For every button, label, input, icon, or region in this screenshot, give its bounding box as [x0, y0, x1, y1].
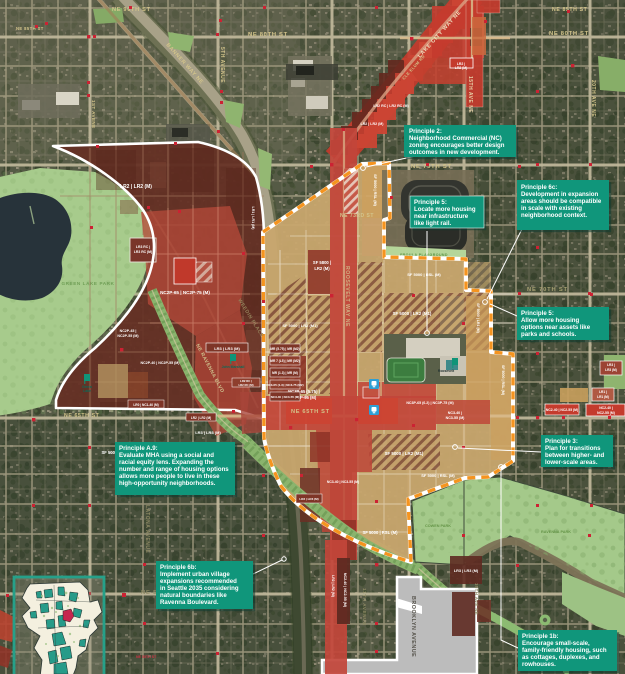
svg-text:NE 80TH ST: NE 80TH ST: [248, 32, 288, 38]
svg-text:Plan for transitions: Plan for transitions: [545, 445, 601, 452]
svg-text:COWEN PARK: COWEN PARK: [425, 524, 451, 528]
svg-text:Allow more housing: Allow more housing: [521, 317, 580, 324]
svg-text:BROOKLYN AVENUE: BROOKLYN AVENUE: [410, 596, 416, 657]
svg-text:NC3P-65 (6.2) | NC3P-75 (M): NC3P-65 (6.2) | NC3P-75 (M): [406, 401, 454, 405]
svg-text:rowhouses.: rowhouses.: [522, 661, 556, 668]
svg-text:LR2 RC (M): LR2 RC (M): [238, 383, 253, 387]
svg-text:Principle 2:: Principle 2:: [409, 128, 442, 135]
svg-text:in scale with existing: in scale with existing: [521, 205, 582, 212]
svg-text:Principle 6b:: Principle 6b:: [160, 564, 197, 571]
svg-text:11TH AVENUE: 11TH AVENUE: [361, 588, 367, 626]
svg-text:Lake: Lake: [83, 389, 91, 393]
svg-text:SF 5000 | LR2 (M1): SF 5000 | LR2 (M1): [393, 311, 432, 316]
svg-text:high-opportunity neighborhoods: high-opportunity neighborhoods.: [119, 480, 216, 487]
svg-text:Principle A.9:: Principle A.9:: [119, 445, 158, 452]
svg-text:LR3 | LR3 (M): LR3 | LR3 (M): [299, 497, 318, 501]
svg-text:NC2-40 | NC2-55 (M): NC2-40 | NC2-55 (M): [546, 408, 578, 412]
svg-text:SF 5000 | LR1 (M): SF 5000 | LR1 (M): [476, 303, 480, 334]
svg-text:NC2P-65 | NC2P-75 (M): NC2P-65 | NC2P-75 (M): [160, 290, 210, 295]
svg-text:SF 5000 | RSL (M): SF 5000 | RSL (M): [421, 473, 455, 478]
svg-text:MR (5.75) | MR (M2): MR (5.75) | MR (M2): [270, 347, 299, 351]
svg-text:GREEN LAKE PARK: GREEN LAKE PARK: [61, 281, 114, 286]
svg-text:parks and schools.: parks and schools.: [521, 331, 577, 338]
svg-text:zoning encourages better desig: zoning encourages better design: [409, 142, 505, 149]
svg-text:LR2 RC | LR2 RC (M): LR2 RC | LR2 RC (M): [373, 104, 409, 108]
svg-text:SF 5000 | LR2 (M1): SF 5000 | LR2 (M1): [282, 323, 318, 328]
svg-text:number and range of housing op: number and range of housing options: [119, 466, 229, 473]
svg-text:SF 5000 | RSL (M): SF 5000 | RSL (M): [407, 272, 441, 277]
svg-text:LATONA AVENUE: LATONA AVENUE: [144, 505, 150, 554]
svg-text:NE 65TH ST: NE 65TH ST: [64, 413, 100, 419]
svg-text:RAVENNA PARK: RAVENNA PARK: [541, 530, 571, 534]
svg-text:NC3-65 (1.3) | NC3-75 (M2): NC3-65 (1.3) | NC3-75 (M2): [266, 383, 303, 387]
svg-text:Locate more housing: Locate more housing: [414, 206, 476, 213]
svg-text:LR2 | LR2 (M): LR2 | LR2 (M): [120, 184, 152, 190]
svg-text:outcomes in new development.: outcomes in new development.: [409, 149, 500, 156]
svg-text:NE 65TH ST: NE 65TH ST: [291, 409, 330, 415]
svg-text:15TH AVE NE: 15TH AVE NE: [474, 583, 479, 615]
svg-text:SF 5000 | RSL (M): SF 5000 | RSL (M): [362, 530, 398, 535]
svg-text:LR2 | LR2 (M): LR2 | LR2 (M): [361, 122, 385, 126]
svg-text:Evaluate MHA using a social an: Evaluate MHA using a social and: [119, 452, 214, 459]
svg-text:15TH AVE NE: 15TH AVE NE: [467, 76, 473, 113]
svg-text:20TH AVE NE: 20TH AVE NE: [590, 80, 596, 117]
svg-text:LR3 | LR3 (M): LR3 | LR3 (M): [214, 346, 240, 351]
svg-text:LR1 |: LR1 |: [599, 390, 607, 394]
svg-text:Neighborhood Commercial (NC): Neighborhood Commercial (NC): [409, 135, 502, 142]
svg-text:NE 75TH ST: NE 75TH ST: [411, 164, 452, 170]
svg-text:as cottages, duplexes, and: as cottages, duplexes, and: [522, 654, 600, 661]
svg-text:near infrastructure: near infrastructure: [414, 213, 469, 220]
svg-text:Principle 3:: Principle 3:: [545, 438, 578, 445]
svg-text:Ravenna Boulevard.: Ravenna Boulevard.: [160, 599, 219, 606]
svg-text:expansions recommended: expansions recommended: [160, 578, 237, 585]
svg-text:natural boundaries like: natural boundaries like: [160, 592, 227, 599]
svg-text:NE 55TH ST: NE 55TH ST: [136, 655, 157, 659]
svg-text:like light rail.: like light rail.: [414, 220, 452, 227]
svg-text:options near assets like: options near assets like: [521, 324, 591, 331]
svg-text:SF 5000 | LR2 (M1): SF 5000 | LR2 (M1): [385, 451, 424, 456]
svg-text:NC3-55 (M): NC3-55 (M): [446, 416, 466, 420]
svg-text:neighborhood context.: neighborhood context.: [521, 212, 587, 219]
svg-text:Principle 5:: Principle 5:: [521, 310, 554, 317]
svg-text:Development in expansion: Development in expansion: [521, 191, 598, 198]
svg-text:between higher- and: between higher- and: [545, 452, 605, 459]
svg-text:ROOSEVELT WAY NE: ROOSEVELT WAY NE: [344, 266, 350, 327]
svg-text:LR3 |: LR3 |: [607, 363, 615, 367]
svg-text:John Marshall: John Marshall: [222, 365, 245, 369]
svg-text:racial equity lens. Expanding: racial equity lens. Expanding the: [119, 459, 214, 466]
svg-text:SF 5000 | RSL (M): SF 5000 | RSL (M): [373, 174, 377, 207]
svg-text:family-friendly housing, such: family-friendly housing, such: [522, 647, 607, 654]
svg-text:NC3-40 | NC3-55 (M): NC3-40 | NC3-55 (M): [327, 480, 359, 484]
svg-text:Roosevelt: Roosevelt: [438, 369, 455, 373]
svg-text:LR1 | LR1 (M): LR1 | LR1 (M): [251, 207, 255, 231]
svg-text:NE 73RD ST: NE 73RD ST: [340, 213, 374, 219]
svg-text:LR2 | LR2 (M): LR2 | LR2 (M): [191, 416, 211, 420]
svg-text:NC2P-40 | NC2P-55 (M): NC2P-40 | NC2P-55 (M): [141, 361, 181, 365]
svg-text:Encourage small-scale,: Encourage small-scale,: [522, 640, 590, 647]
svg-text:MR 7 (L5) | MR (M2): MR 7 (L5) | MR (M2): [270, 359, 299, 363]
svg-text:NE 80TH ST: NE 80TH ST: [549, 31, 589, 37]
svg-text:1ST AVENE: 1ST AVENE: [91, 100, 96, 129]
svg-text:NE 70TH ST: NE 70TH ST: [527, 287, 568, 293]
svg-text:Principle 1b:: Principle 1b:: [522, 633, 559, 640]
svg-text:5TH AVENUE: 5TH AVENUE: [219, 47, 225, 83]
svg-text:areas should be compatible: areas should be compatible: [521, 198, 602, 205]
svg-text:LR3 | LR3 (M): LR3 | LR3 (M): [454, 569, 479, 573]
svg-text:Principle 5:: Principle 5:: [414, 199, 447, 206]
svg-text:NC2-40 | NC2-55 (M): NC2-40 | NC2-55 (M): [343, 573, 347, 608]
svg-text:LR1 (M): LR1 (M): [597, 395, 609, 399]
svg-text:LR3 RC (M): LR3 RC (M): [134, 250, 152, 254]
svg-text:LR3 | LR3 (M): LR3 | LR3 (M): [195, 430, 221, 435]
svg-text:NC2-40 |: NC2-40 |: [599, 406, 613, 410]
svg-text:NC2P-55 (M): NC2P-55 (M): [117, 334, 139, 338]
svg-text:SF 5800 |: SF 5800 |: [313, 260, 331, 265]
svg-text:LR2 (M): LR2 (M): [455, 66, 467, 70]
svg-text:SF 5000 | RSL (M): SF 5000 | RSL (M): [501, 365, 505, 396]
svg-text:LR3 (M): LR3 (M): [605, 368, 617, 372]
svg-text:in Seattle 2035 considering: in Seattle 2035 considering: [160, 585, 239, 592]
svg-text:NC3-40 | NC3-55 (M): NC3-40 | NC3-55 (M): [271, 395, 300, 399]
svg-text:LR2 | LR2 (M): LR2 | LR2 (M): [331, 575, 335, 597]
svg-text:Implement urban village: Implement urban village: [160, 571, 230, 578]
svg-text:Principle 6c:: Principle 6c:: [521, 184, 557, 191]
svg-text:NC2P-45 |: NC2P-45 |: [120, 329, 137, 333]
svg-text:allows more people to live in: allows more people to live in these: [119, 473, 220, 480]
svg-text:NE 85TH ST: NE 85TH ST: [16, 26, 44, 31]
svg-text:LR3 RC |: LR3 RC |: [136, 245, 150, 249]
svg-text:NC2-55 (M): NC2-55 (M): [597, 411, 615, 415]
svg-text:LR0 | NC1-40 (M): LR0 | NC1-40 (M): [133, 403, 158, 407]
svg-text:MR (1.3) | MR (M): MR (1.3) | MR (M): [272, 371, 298, 375]
svg-text:LR2 (M): LR2 (M): [314, 266, 330, 271]
svg-text:lower-scale areas.: lower-scale areas.: [545, 459, 598, 466]
svg-text:NC3-40 |: NC3-40 |: [448, 411, 462, 415]
